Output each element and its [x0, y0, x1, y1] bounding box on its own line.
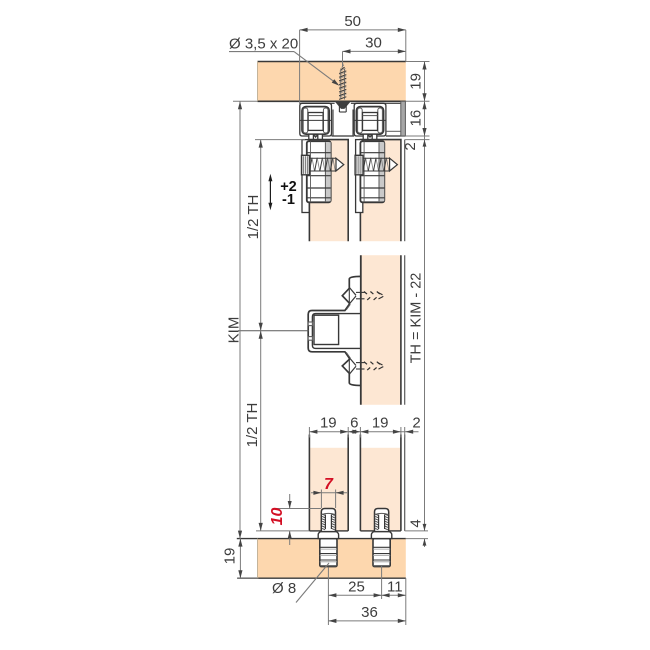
svg-text:16: 16 — [408, 110, 425, 127]
svg-text:1/2 TH: 1/2 TH — [245, 195, 262, 240]
svg-text:10: 10 — [269, 508, 286, 526]
svg-text:11: 11 — [387, 578, 403, 595]
svg-text:50: 50 — [344, 13, 361, 30]
svg-text:2: 2 — [402, 142, 419, 150]
svg-text:-1: -1 — [282, 192, 295, 208]
svg-text:25: 25 — [348, 578, 365, 595]
svg-text:4: 4 — [408, 519, 425, 527]
svg-text:6: 6 — [350, 415, 358, 432]
svg-text:19: 19 — [372, 415, 389, 432]
svg-text:19: 19 — [320, 415, 337, 432]
svg-text:1/2 TH: 1/2 TH — [244, 403, 261, 448]
svg-text:TH = KIM - 22: TH = KIM - 22 — [409, 273, 425, 364]
svg-text:19: 19 — [408, 73, 425, 90]
svg-text:Ø 3,5 x 20: Ø 3,5 x 20 — [229, 36, 298, 53]
svg-text:2: 2 — [412, 415, 420, 432]
svg-text:Ø 8: Ø 8 — [272, 580, 296, 597]
svg-text:36: 36 — [361, 604, 378, 621]
svg-text:KIM: KIM — [226, 317, 243, 344]
svg-text:19: 19 — [222, 548, 239, 565]
svg-text:30: 30 — [365, 34, 382, 51]
svg-text:7: 7 — [324, 476, 334, 493]
